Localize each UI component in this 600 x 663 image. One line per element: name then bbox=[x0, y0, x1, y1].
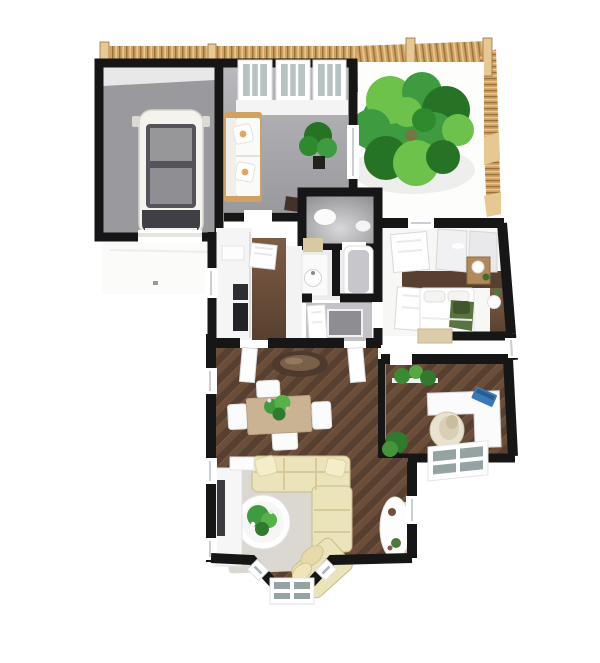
bed-cushion bbox=[453, 301, 470, 314]
bathtub bbox=[348, 250, 369, 293]
window-bay-row bbox=[236, 60, 348, 115]
small-plant bbox=[494, 289, 501, 296]
sofa-pillow bbox=[325, 457, 347, 478]
bathroom-counter bbox=[303, 238, 323, 252]
garage-door bbox=[138, 233, 202, 237]
open-door bbox=[249, 243, 277, 270]
dining-chair bbox=[227, 404, 247, 430]
tree-leaf-cluster bbox=[426, 140, 460, 174]
kitchen-wall-column bbox=[286, 246, 302, 342]
bedroom-stool bbox=[488, 296, 501, 309]
window-pane bbox=[294, 582, 310, 589]
chair-cushion bbox=[446, 415, 458, 429]
office-right-wall bbox=[508, 359, 513, 456]
window-unit bbox=[274, 60, 312, 115]
bench bbox=[230, 457, 254, 470]
sitting-room-sofa bbox=[224, 112, 262, 202]
window-glass bbox=[281, 64, 305, 96]
bay-front-frame bbox=[270, 578, 314, 604]
open-door bbox=[307, 305, 327, 340]
wardrobe-door bbox=[436, 229, 467, 272]
fence-post bbox=[483, 38, 492, 76]
dining-chair bbox=[256, 380, 280, 398]
sofa-pillow bbox=[232, 123, 253, 144]
table-highlight bbox=[285, 358, 303, 365]
door-opening bbox=[244, 210, 272, 223]
car-mirror-left bbox=[132, 116, 140, 127]
tv-screen bbox=[217, 480, 225, 536]
toilet bbox=[314, 209, 336, 225]
car-windshield bbox=[150, 168, 192, 204]
dining-chair bbox=[311, 401, 331, 429]
floor-plan-stage bbox=[0, 0, 600, 663]
open-door bbox=[239, 347, 257, 382]
kitchen bbox=[205, 228, 302, 342]
entry-oval-table bbox=[272, 351, 328, 377]
car-rear-window bbox=[150, 128, 192, 161]
window-glass bbox=[243, 64, 267, 96]
flower-decor bbox=[388, 546, 393, 551]
office-box-window bbox=[428, 441, 488, 481]
ceiling-light bbox=[452, 243, 464, 249]
window-unit bbox=[311, 60, 348, 115]
driveway-mark bbox=[153, 281, 158, 285]
hall-dresser bbox=[418, 329, 452, 343]
tree-trunk bbox=[405, 129, 417, 141]
window-sill bbox=[311, 100, 348, 115]
door-opening bbox=[372, 302, 384, 328]
small-plant bbox=[483, 274, 490, 281]
window-sill bbox=[274, 100, 312, 115]
egg-chair bbox=[430, 412, 464, 448]
window-pane bbox=[274, 582, 290, 589]
kitchen-counter-block bbox=[222, 246, 244, 260]
table-lamp bbox=[472, 261, 484, 273]
coffee-table bbox=[236, 495, 290, 549]
window-unit bbox=[236, 60, 274, 115]
faucet bbox=[311, 271, 315, 275]
table-flower bbox=[251, 522, 255, 526]
sofa-pillow bbox=[235, 162, 256, 183]
car-mirror-right bbox=[202, 116, 210, 127]
plant-pot bbox=[313, 156, 325, 169]
table-plant bbox=[255, 522, 269, 536]
open-door bbox=[348, 347, 366, 382]
fence-post bbox=[484, 192, 501, 217]
bed-pillow bbox=[424, 291, 445, 302]
flower-decor bbox=[391, 538, 401, 548]
window-pane bbox=[274, 593, 290, 599]
door-opening bbox=[390, 353, 412, 365]
floor-plan-render bbox=[0, 0, 600, 663]
garage bbox=[99, 63, 219, 243]
driveway bbox=[102, 242, 220, 294]
car bbox=[132, 110, 210, 238]
window-pane bbox=[294, 593, 310, 599]
open-door bbox=[390, 232, 429, 273]
nightstand bbox=[467, 257, 490, 284]
window-glass bbox=[511, 340, 512, 356]
table-flower bbox=[269, 510, 273, 514]
cooktop bbox=[233, 284, 248, 300]
tree-leaf-cluster bbox=[412, 108, 436, 132]
oven bbox=[233, 303, 248, 331]
window-glass bbox=[318, 64, 341, 96]
wash-basin bbox=[356, 221, 371, 232]
shower-tray bbox=[328, 310, 362, 336]
flower-decor bbox=[388, 508, 396, 516]
bedroom-wing bbox=[382, 217, 518, 360]
